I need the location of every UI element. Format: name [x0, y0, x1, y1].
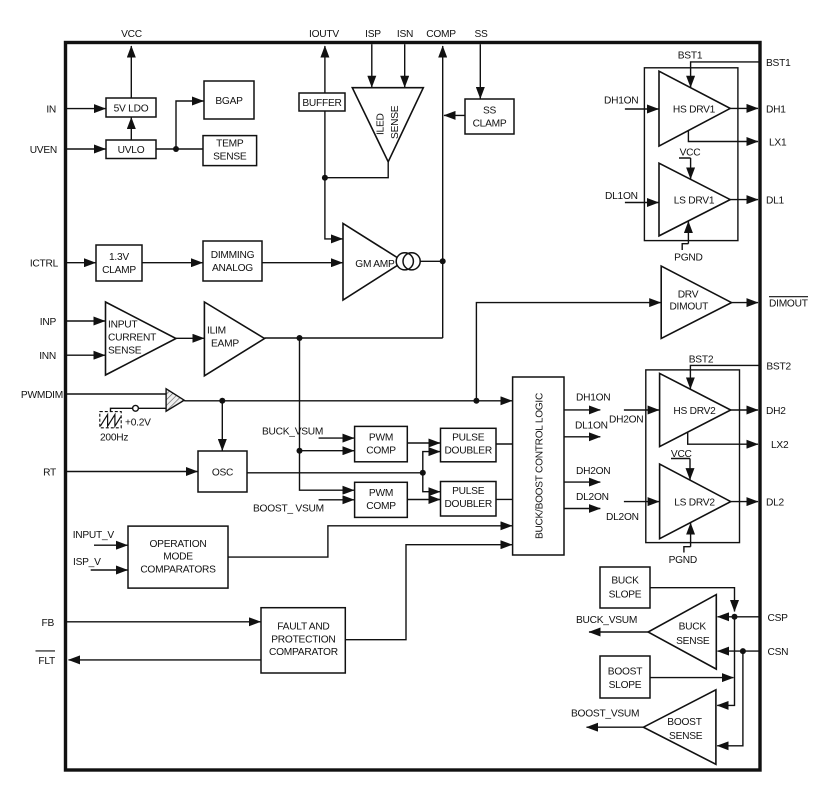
svg-text:INPUT: INPUT — [108, 320, 137, 331]
svg-text:PULSE: PULSE — [452, 433, 485, 444]
svg-text:BST1: BST1 — [766, 58, 791, 69]
svg-text:SENSE: SENSE — [669, 731, 703, 742]
svg-text:BUCK/BOOST CONTROL LOGIC: BUCK/BOOST CONTROL LOGIC — [534, 393, 545, 539]
svg-text:UVLO: UVLO — [118, 145, 145, 156]
svg-text:BST1: BST1 — [678, 51, 703, 62]
svg-text:HS DRV1: HS DRV1 — [673, 104, 716, 115]
svg-text:200Hz: 200Hz — [100, 432, 128, 443]
svg-text:PWM: PWM — [369, 488, 393, 499]
svg-text:ISN: ISN — [397, 29, 413, 40]
svg-text:+0.2V: +0.2V — [125, 417, 151, 428]
svg-text:DH2ON: DH2ON — [576, 466, 610, 477]
svg-text:ICTRL: ICTRL — [30, 259, 59, 270]
svg-text:ISP: ISP — [365, 29, 381, 40]
svg-text:DRV: DRV — [678, 290, 699, 301]
svg-text:DL1ON: DL1ON — [575, 420, 608, 431]
svg-text:BST2: BST2 — [766, 362, 791, 373]
svg-text:ILIM: ILIM — [207, 326, 226, 337]
svg-text:COMP: COMP — [426, 29, 456, 40]
svg-text:PROTECTION: PROTECTION — [271, 634, 335, 645]
svg-text:PGND: PGND — [669, 555, 697, 566]
svg-text:HS DRV2: HS DRV2 — [673, 406, 716, 417]
svg-text:BOOST_VSUM: BOOST_VSUM — [571, 709, 639, 720]
svg-text:FAULT AND: FAULT AND — [277, 622, 329, 633]
svg-text:MODE: MODE — [163, 552, 193, 563]
svg-text:DH1ON: DH1ON — [576, 393, 610, 404]
svg-text:INN: INN — [39, 351, 56, 362]
svg-text:DOUBLER: DOUBLER — [444, 499, 492, 510]
svg-text:DH1: DH1 — [766, 105, 786, 116]
svg-text:DL1ON: DL1ON — [605, 191, 638, 202]
svg-text:BUCK: BUCK — [611, 576, 639, 587]
svg-text:GM AMP: GM AMP — [355, 259, 395, 270]
svg-text:LS DRV1: LS DRV1 — [674, 196, 715, 207]
svg-text:OPERATION: OPERATION — [150, 539, 207, 550]
svg-text:CLAMP: CLAMP — [473, 119, 507, 130]
svg-text:SS: SS — [474, 29, 488, 40]
svg-text:SLOPE: SLOPE — [609, 680, 642, 691]
svg-text:BGAP: BGAP — [215, 96, 243, 107]
svg-text:SS: SS — [483, 106, 497, 117]
svg-text:BUCK_VSUM: BUCK_VSUM — [576, 615, 637, 626]
svg-text:DH2: DH2 — [766, 406, 786, 417]
svg-text:VCC: VCC — [121, 29, 142, 40]
svg-text:DL2ON: DL2ON — [576, 492, 609, 503]
svg-text:PWMDIM: PWMDIM — [21, 390, 63, 401]
svg-text:SENSE: SENSE — [213, 152, 247, 163]
svg-text:TEMP: TEMP — [216, 139, 244, 150]
svg-text:COMPARATOR: COMPARATOR — [269, 647, 338, 658]
svg-text:DH2ON: DH2ON — [609, 414, 643, 425]
svg-text:ANALOG: ANALOG — [212, 263, 253, 274]
svg-text:CSP: CSP — [768, 613, 789, 624]
svg-text:BUCK_VSUM: BUCK_VSUM — [262, 427, 323, 438]
svg-text:DIMMING: DIMMING — [211, 250, 255, 261]
svg-text:FLT: FLT — [38, 656, 55, 667]
svg-text:COMP: COMP — [366, 445, 396, 456]
svg-text:CURRENT: CURRENT — [108, 333, 156, 344]
svg-text:SENSE: SENSE — [108, 346, 142, 357]
svg-text:DL2ON: DL2ON — [606, 512, 639, 523]
svg-text:DOUBLER: DOUBLER — [444, 446, 492, 457]
svg-text:BUCK: BUCK — [679, 622, 707, 633]
svg-text:SENSE: SENSE — [676, 636, 710, 647]
svg-text:DL1: DL1 — [766, 196, 785, 207]
svg-text:LS DRV2: LS DRV2 — [674, 498, 715, 509]
svg-text:COMP: COMP — [366, 501, 396, 512]
svg-text:PULSE: PULSE — [452, 486, 485, 497]
svg-text:CSN: CSN — [768, 647, 789, 658]
svg-text:INPUT_V: INPUT_V — [73, 530, 115, 541]
svg-text:LX1: LX1 — [769, 138, 787, 149]
svg-text:SENSE: SENSE — [390, 105, 401, 139]
svg-text:IOUTV: IOUTV — [309, 29, 339, 40]
svg-text:CLAMP: CLAMP — [102, 265, 136, 276]
svg-text:PWM: PWM — [369, 432, 393, 443]
svg-text:BOOST_ VSUM: BOOST_ VSUM — [253, 504, 324, 515]
svg-text:ILED: ILED — [375, 113, 386, 135]
svg-text:OSC: OSC — [212, 468, 233, 479]
svg-text:5V LDO: 5V LDO — [114, 104, 149, 115]
svg-text:INP: INP — [40, 317, 57, 328]
svg-text:ISP_V: ISP_V — [73, 557, 101, 568]
svg-text:DIMOUT: DIMOUT — [669, 302, 708, 313]
svg-text:SLOPE: SLOPE — [609, 590, 642, 601]
svg-text:BOOST: BOOST — [667, 717, 701, 728]
svg-text:BUFFER: BUFFER — [302, 98, 341, 109]
svg-text:EAMP: EAMP — [211, 339, 239, 350]
svg-text:COMPARATORS: COMPARATORS — [140, 564, 216, 575]
svg-text:PGND: PGND — [674, 253, 702, 264]
svg-text:VCC: VCC — [680, 148, 701, 159]
svg-text:RT: RT — [43, 468, 56, 479]
svg-text:DIMOUT: DIMOUT — [769, 299, 808, 310]
svg-text:UVEN: UVEN — [30, 145, 57, 156]
svg-text:FB: FB — [41, 618, 54, 629]
svg-text:DL2: DL2 — [766, 498, 785, 509]
svg-text:BOOST: BOOST — [608, 667, 642, 678]
svg-text:DH1ON: DH1ON — [604, 96, 638, 107]
svg-text:IN: IN — [46, 105, 56, 116]
svg-text:1.3V: 1.3V — [109, 252, 129, 263]
svg-text:LX2: LX2 — [771, 440, 789, 451]
svg-text:BST2: BST2 — [689, 354, 714, 365]
